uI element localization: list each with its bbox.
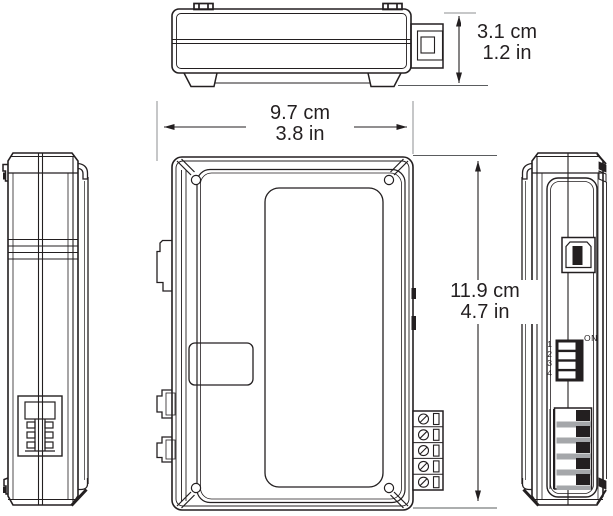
din-release-clip (18, 396, 62, 456)
top-view-drawing (172, 4, 443, 87)
corner-screw-bottom-left (177, 483, 201, 508)
terminal-block-front (413, 411, 443, 490)
dip-switch-1[interactable] (559, 343, 576, 350)
left-side-view-drawing (3, 153, 88, 506)
depth-dimension-label: 3.1 cm 1.2 in (461, 21, 553, 65)
line-art (0, 0, 613, 516)
terminal-block-side (550, 408, 592, 490)
dip-label-4: 4 (542, 369, 552, 379)
dip-switch-2[interactable] (559, 352, 576, 359)
small-label-area (189, 343, 253, 385)
height-imperial: 4.7 in (433, 302, 537, 323)
height-metric: 11.9 cm (433, 281, 537, 302)
bezel-hook-top-right-view (523, 164, 533, 180)
width-metric: 9.7 cm (248, 103, 352, 124)
depth-imperial: 1.2 in (463, 43, 551, 64)
width-imperial: 3.8 in (248, 124, 352, 145)
height-dimension-label: 11.9 cm 4.7 in (431, 280, 539, 324)
large-label-area (265, 188, 383, 487)
usb-b-port (562, 238, 595, 273)
top-view-feet (184, 73, 401, 87)
dip-switch-block[interactable] (556, 340, 583, 381)
bezel-hook-bottom (78, 478, 88, 490)
front-view-drawing (157, 157, 443, 510)
dip-switch-3[interactable] (559, 362, 576, 369)
width-dimension-label: 9.7 cm 3.8 in (246, 102, 354, 146)
dip-on-label: ON (584, 334, 598, 343)
dimension-drawing: 3.1 cm 1.2 in 9.7 cm 3.8 in 11.9 cm 4.7 … (0, 0, 613, 516)
right-side-view-drawing (522, 153, 607, 506)
depth-metric: 3.1 cm (463, 22, 551, 43)
corner-screw-top-left (177, 159, 201, 185)
usb-connector-top (411, 24, 443, 68)
bezel-hook-bottom-right-view (523, 478, 533, 490)
front-enclosure-outline (172, 157, 413, 510)
din-clip-upper (157, 241, 172, 292)
bezel-hook-top (78, 164, 88, 180)
dip-switch-4[interactable] (559, 371, 576, 378)
top-enclosure-outline (172, 9, 411, 73)
